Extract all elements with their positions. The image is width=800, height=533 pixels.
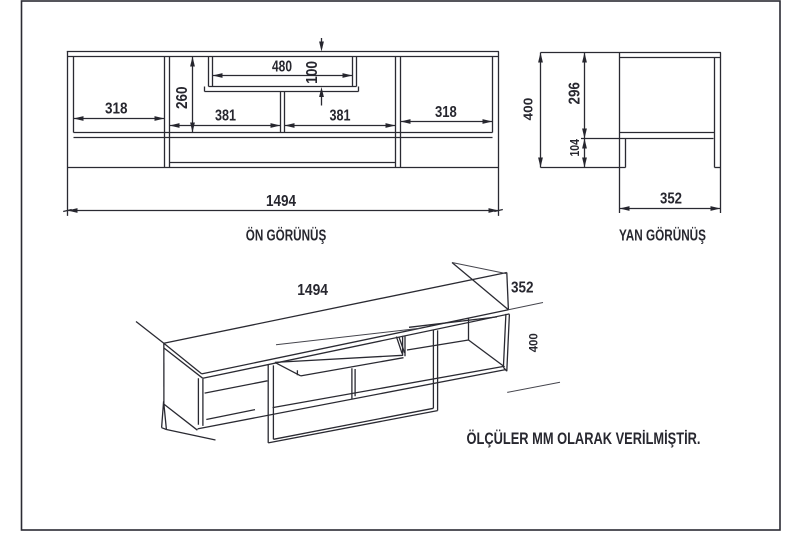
svg-text:104: 104	[567, 138, 582, 156]
svg-text:400: 400	[521, 98, 535, 121]
svg-text:260: 260	[174, 87, 191, 110]
svg-text:381: 381	[215, 108, 236, 125]
svg-text:100: 100	[304, 61, 321, 84]
svg-text:480: 480	[272, 59, 292, 76]
svg-text:400: 400	[529, 333, 541, 352]
svg-text:318: 318	[435, 104, 457, 121]
svg-text:1494: 1494	[297, 282, 328, 299]
svg-text:318: 318	[105, 100, 128, 117]
svg-text:352: 352	[660, 191, 682, 208]
svg-text:296: 296	[566, 82, 583, 105]
svg-text:352: 352	[511, 280, 534, 297]
svg-text:381: 381	[330, 108, 351, 125]
svg-text:YAN GÖRÜNÜŞ: YAN GÖRÜNÜŞ	[619, 227, 706, 244]
svg-text:1494: 1494	[266, 193, 296, 210]
svg-text:ÖLÇÜLER MM OLARAK VERİLMİŞTİR.: ÖLÇÜLER MM OLARAK VERİLMİŞTİR.	[467, 429, 701, 448]
svg-text:ÖN GÖRÜNÜŞ: ÖN GÖRÜNÜŞ	[246, 227, 327, 244]
